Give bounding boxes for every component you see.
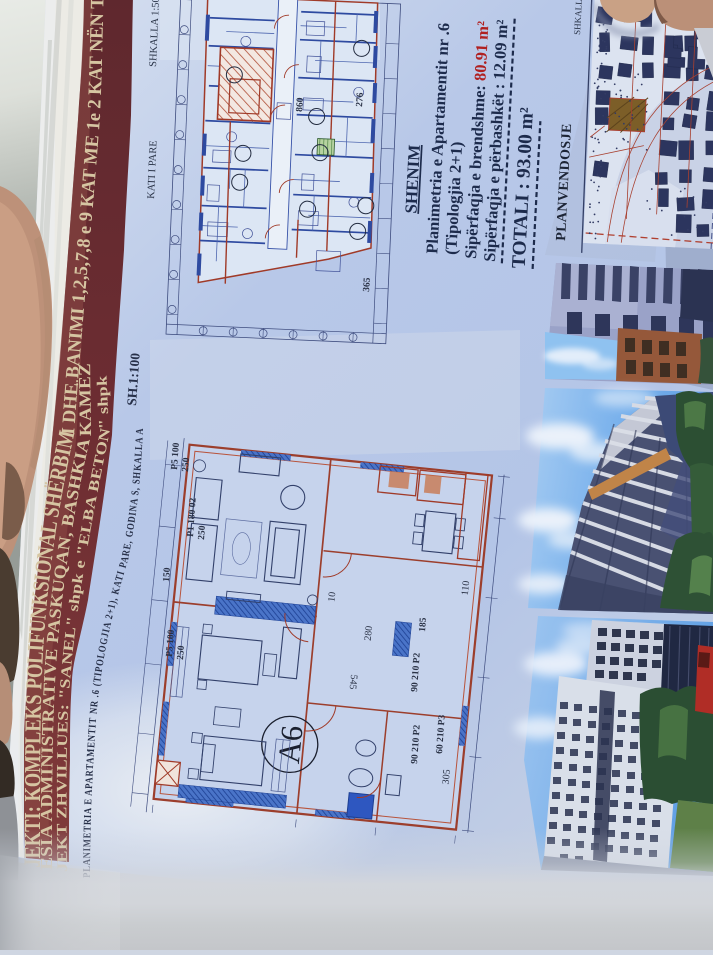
svg-text:10: 10 [326,591,338,602]
svg-text:A6: A6 [271,724,310,765]
svg-text:SHENIM: SHENIM [401,144,424,214]
svg-text:365: 365 [362,277,373,292]
svg-text:860: 860 [295,97,306,112]
svg-text:P5 100: P5 100 [165,629,177,657]
svg-text:250: 250 [176,645,187,660]
svg-text:110: 110 [460,580,472,596]
svg-text:150: 150 [162,567,173,582]
svg-text:P5 100: P5 100 [170,442,182,470]
svg-text:305: 305 [441,769,453,785]
svg-text:250: 250 [181,457,192,472]
svg-text:545: 545 [347,674,359,690]
svg-text:185: 185 [418,617,429,632]
svg-text:250: 250 [197,525,208,540]
svg-text:276: 276 [355,92,366,107]
svg-text:280: 280 [363,625,375,641]
